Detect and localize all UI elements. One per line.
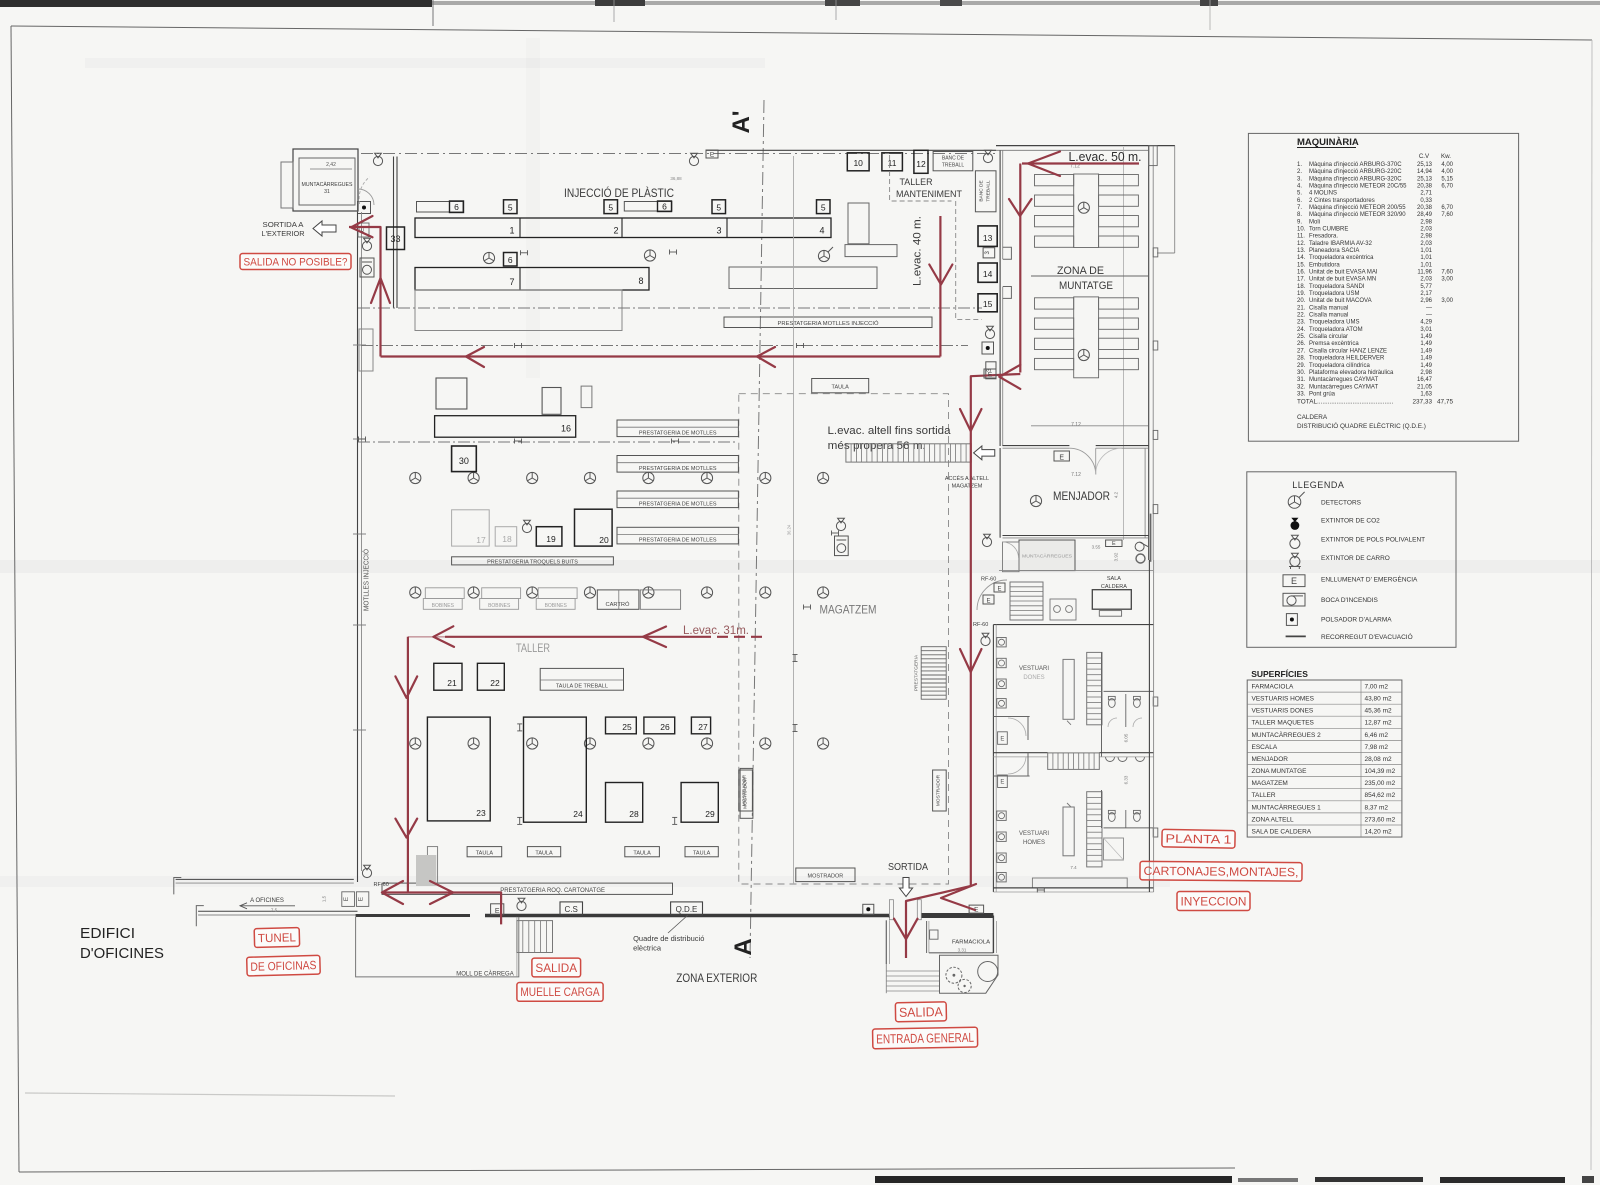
svg-text:29: 29: [705, 809, 715, 819]
svg-text:ACCÉS A ALTELL: ACCÉS A ALTELL: [945, 475, 989, 482]
svg-text:TAULA DE TREBALL: TAULA DE TREBALL: [556, 684, 608, 690]
svg-text:12.: 12.: [1297, 241, 1306, 247]
svg-text:PRESTATGERIA DE MOTLLES: PRESTATGERIA DE MOTLLES: [639, 466, 717, 472]
svg-text:D'OFICINES: D'OFICINES: [80, 945, 164, 962]
svg-text:MENJADOR: MENJADOR: [1252, 756, 1289, 763]
svg-text:1,01: 1,01: [1420, 248, 1432, 254]
svg-text:PRESTATGERIA DE MOTLLES: PRESTATGERIA DE MOTLLES: [639, 538, 717, 544]
svg-text:DISTRIBUCIÓ QUADRE ELÈCTRIC (Q: DISTRIBUCIÓ QUADRE ELÈCTRIC (Q.D.E.): [1297, 421, 1426, 430]
svg-text:MUNTATGE: MUNTATGE: [1059, 280, 1113, 292]
svg-text:237,33: 237,33: [1412, 399, 1432, 406]
svg-text:7,00 m2: 7,00 m2: [1365, 684, 1389, 691]
svg-text:16.: 16.: [1297, 270, 1306, 276]
svg-text:19: 19: [546, 534, 556, 544]
svg-text:VESTUARI: VESTUARI: [1019, 666, 1049, 672]
svg-text:MANTENIMENT: MANTENIMENT: [896, 189, 962, 200]
svg-text:—: —: [1426, 313, 1432, 319]
svg-text:273,60 m2: 273,60 m2: [1365, 816, 1396, 823]
svg-text:Cisalla circular: Cisalla circular: [1309, 334, 1348, 340]
svg-text:EXTINTOR DE CO2: EXTINTOR DE CO2: [1321, 518, 1380, 525]
svg-text:12,87 m2: 12,87 m2: [1365, 720, 1392, 727]
svg-text:3.: 3.: [1297, 176, 1302, 182]
svg-text:20: 20: [599, 535, 609, 545]
svg-text:L.evac. 31m.: L.evac. 31m.: [683, 625, 749, 637]
svg-text:4 MOLINS: 4 MOLINS: [1309, 191, 1337, 197]
svg-text:4,29: 4,29: [1420, 320, 1432, 326]
svg-text:8,37 m2: 8,37 m2: [1365, 804, 1389, 811]
svg-text:22.: 22.: [1297, 313, 1306, 319]
svg-text:2,96: 2,96: [1420, 298, 1432, 304]
svg-text:14.: 14.: [1297, 255, 1306, 261]
svg-text:Planeadora SACIA: Planeadora SACIA: [1309, 248, 1359, 254]
svg-text:EXTINTOR DE POLS POLIVALENT: EXTINTOR DE POLS POLIVALENT: [1321, 537, 1425, 544]
svg-text:Cisalla manual: Cisalla manual: [1309, 305, 1348, 311]
svg-text:SALA DE CALDERA: SALA DE CALDERA: [1252, 828, 1312, 835]
svg-text:ZONA MUNTATGE: ZONA MUNTATGE: [1252, 768, 1308, 775]
svg-text:28,49: 28,49: [1417, 212, 1433, 218]
svg-text:3,00: 3,00: [1441, 298, 1453, 304]
svg-text:1.: 1.: [1297, 162, 1302, 168]
svg-text:RF-60: RF-60: [981, 577, 996, 583]
svg-text:BANC DE: BANC DE: [979, 180, 985, 201]
svg-text:2,03: 2,03: [1420, 227, 1432, 233]
svg-text:33.: 33.: [1297, 391, 1306, 397]
svg-text:7,5: 7,5: [271, 908, 278, 913]
svg-text:VESTUARI: VESTUARI: [1019, 831, 1049, 837]
svg-text:1: 1: [509, 226, 514, 236]
svg-text:2,17: 2,17: [1420, 291, 1432, 297]
svg-text:4: 4: [819, 226, 824, 236]
svg-text:5,15: 5,15: [1441, 176, 1453, 182]
svg-text:Troqueladora USM: Troqueladora USM: [1309, 291, 1359, 297]
svg-text:7.12: 7.12: [1071, 472, 1081, 478]
svg-text:6,70: 6,70: [1441, 184, 1453, 190]
svg-text:PRESTATGERIA TROQUELS BUITS: PRESTATGERIA TROQUELS BUITS: [487, 560, 578, 566]
svg-text:20,38: 20,38: [1417, 184, 1433, 190]
svg-text:1,49: 1,49: [1420, 341, 1432, 347]
svg-text:2,03: 2,03: [1420, 277, 1432, 283]
svg-text:TREBALL: TREBALL: [986, 180, 992, 202]
svg-text:C.V: C.V: [1419, 153, 1430, 160]
svg-text:E: E: [1112, 541, 1116, 547]
svg-text:més propera 56 m.: més propera 56 m.: [828, 440, 926, 452]
svg-text:2.: 2.: [1297, 169, 1302, 175]
svg-text:E: E: [710, 151, 715, 158]
svg-text:22: 22: [490, 678, 500, 688]
svg-text:14: 14: [983, 269, 993, 279]
svg-text:2,98: 2,98: [1420, 219, 1432, 225]
svg-text:Taladre IBARMIA AV-32: Taladre IBARMIA AV-32: [1309, 241, 1373, 247]
svg-text:2,42: 2,42: [326, 162, 336, 168]
svg-text:BOBINES: BOBINES: [545, 603, 568, 609]
svg-text:3.92: 3.92: [1114, 552, 1119, 561]
svg-text:6: 6: [508, 255, 513, 265]
svg-text:25,13: 25,13: [1417, 176, 1433, 182]
svg-text:E: E: [1000, 780, 1004, 786]
svg-text:5: 5: [508, 203, 513, 213]
svg-text:1,01: 1,01: [1420, 255, 1432, 261]
svg-text:Premsa excèntrica: Premsa excèntrica: [1309, 341, 1359, 347]
svg-text:Muntacàrregues CAYMAT: Muntacàrregues CAYMAT: [1309, 384, 1378, 390]
svg-text:L.evac. altell fins sortida: L.evac. altell fins sortida: [828, 425, 952, 437]
svg-text:1,01: 1,01: [1420, 262, 1432, 268]
svg-text:PRESTATGERIA: PRESTATGERIA: [914, 654, 920, 691]
svg-text:6: 6: [454, 202, 459, 212]
svg-text:INYECCION: INYECCION: [1181, 894, 1247, 908]
svg-text:MUNTACÀRREGUES 1: MUNTACÀRREGUES 1: [1252, 802, 1322, 811]
svg-text:2,03: 2,03: [1420, 241, 1432, 247]
svg-text:23.: 23.: [1297, 320, 1306, 326]
svg-text:A: A: [730, 938, 757, 955]
svg-text:11: 11: [888, 158, 897, 168]
svg-text:20.: 20.: [1297, 298, 1306, 304]
svg-text:16,47: 16,47: [1417, 377, 1433, 383]
svg-text:21: 21: [447, 678, 457, 688]
svg-text:Moli: Moli: [1309, 219, 1320, 225]
svg-text:Troqueladora SANDI: Troqueladora SANDI: [1309, 284, 1365, 290]
svg-text:24: 24: [573, 809, 583, 819]
svg-text:4,00: 4,00: [1441, 162, 1453, 168]
svg-text:104,39 m2: 104,39 m2: [1365, 768, 1396, 775]
svg-text:PLANTA 1: PLANTA 1: [1165, 831, 1232, 846]
svg-text:Fresadora.: Fresadora.: [1309, 234, 1338, 240]
svg-text:1,63: 1,63: [1420, 391, 1432, 397]
svg-text:15.: 15.: [1297, 262, 1306, 268]
svg-text:BOCA D'INCENDIS: BOCA D'INCENDIS: [1321, 597, 1379, 604]
svg-text:20,38: 20,38: [1417, 205, 1433, 211]
svg-text:28: 28: [629, 809, 639, 819]
svg-text:Troqueladora excèntrica: Troqueladora excèntrica: [1309, 255, 1374, 261]
svg-text:235,00 m2: 235,00 m2: [1365, 780, 1396, 787]
svg-text:19.: 19.: [1297, 291, 1306, 297]
svg-text:Pont grúa: Pont grúa: [1309, 391, 1336, 397]
svg-text:L'EXTERIOR: L'EXTERIOR: [262, 231, 305, 238]
svg-text:MUNTACÀRREGUES: MUNTACÀRREGUES: [1022, 553, 1072, 560]
svg-text:6: 6: [662, 202, 667, 212]
svg-text:HOMES: HOMES: [1023, 840, 1045, 846]
svg-text:16: 16: [561, 424, 571, 434]
svg-text:23: 23: [476, 808, 486, 818]
svg-text:VESTUARIS HOMES: VESTUARIS HOMES: [1252, 696, 1315, 703]
svg-text:E: E: [997, 586, 1001, 592]
svg-text:3.31: 3.31: [958, 948, 967, 953]
svg-text:2,98: 2,98: [1420, 234, 1432, 240]
svg-text:PRESTATGERIA MOTLLES INJECCIÓ: PRESTATGERIA MOTLLES INJECCIÓ: [778, 320, 879, 327]
svg-text:Troqueladora cilíndrica: Troqueladora cilíndrica: [1309, 363, 1370, 369]
svg-text:29.: 29.: [1297, 363, 1306, 369]
svg-text:2: 2: [613, 226, 618, 236]
svg-text:13.: 13.: [1297, 248, 1306, 254]
svg-text:1,49: 1,49: [1420, 334, 1432, 340]
svg-text:21.: 21.: [1297, 305, 1306, 311]
svg-text:Muntacàrregues CAYMAT: Muntacàrregues CAYMAT: [1309, 377, 1378, 383]
svg-text:Unitat de buit EVASA MAI: Unitat de buit EVASA MAI: [1309, 270, 1378, 276]
svg-text:MOSTRADOR: MOSTRADOR: [743, 777, 749, 809]
svg-text:17: 17: [476, 535, 486, 545]
svg-text:SORTIDA A: SORTIDA A: [263, 222, 304, 229]
svg-text:TOTAL.........................: TOTAL...................................…: [1297, 399, 1394, 406]
svg-text:Cisalla circular HANZ LENZE: Cisalla circular HANZ LENZE: [1309, 348, 1387, 354]
svg-text:27: 27: [698, 722, 708, 732]
svg-text:ENLLUMENAT D' EMERGÈNCIA: ENLLUMENAT D' EMERGÈNCIA: [1321, 575, 1418, 584]
svg-text:3,00: 3,00: [1441, 277, 1453, 283]
svg-text:31.: 31.: [1297, 377, 1306, 383]
svg-text:15: 15: [983, 299, 993, 309]
svg-text:CARTONAJES,MONTAJES,: CARTONAJES,MONTAJES,: [1143, 864, 1298, 879]
svg-text:DETECTORS: DETECTORS: [1321, 500, 1362, 507]
svg-text:28,08 m2: 28,08 m2: [1365, 756, 1392, 763]
svg-text:Troqueladora UMS: Troqueladora UMS: [1309, 320, 1359, 326]
svg-text:FARMACIOLA: FARMACIOLA: [1252, 684, 1295, 691]
svg-text:28.: 28.: [1297, 356, 1306, 362]
svg-text:7: 7: [509, 277, 514, 287]
svg-text:TAULA: TAULA: [633, 851, 651, 857]
svg-text:2 Cintes transportadores: 2 Cintes transportadores: [1309, 198, 1375, 204]
svg-text:5: 5: [608, 203, 613, 213]
svg-text:MOTLLES INJECCIÓ: MOTLLES INJECCIÓ: [362, 548, 371, 611]
svg-text:BOBINES: BOBINES: [432, 603, 455, 609]
svg-text:TREBALL: TREBALL: [942, 163, 964, 169]
svg-text:TAULA: TAULA: [832, 385, 850, 391]
svg-text:3: 3: [716, 226, 721, 236]
svg-text:7,60: 7,60: [1441, 270, 1453, 276]
svg-text:CALDERA: CALDERA: [1297, 414, 1328, 421]
svg-text:ZONA ALTELL: ZONA ALTELL: [1252, 816, 1295, 823]
svg-text:6,70: 6,70: [1441, 205, 1453, 211]
svg-text:PRESTATGERIA DE MOTLLES: PRESTATGERIA DE MOTLLES: [639, 501, 717, 507]
svg-text:Màquina d'injecció METEOR 20C/: Màquina d'injecció METEOR 20C/55: [1309, 184, 1407, 190]
svg-text:EDIFICI: EDIFICI: [80, 925, 135, 942]
svg-text:E: E: [1000, 737, 1004, 743]
svg-text:MOLL DE CÀRREGA: MOLL DE CÀRREGA: [456, 971, 513, 978]
svg-text:Unitat de buit EVASA MN: Unitat de buit EVASA MN: [1309, 277, 1376, 283]
svg-text:—: —: [1426, 305, 1432, 311]
svg-text:6,46 m2: 6,46 m2: [1365, 732, 1389, 739]
svg-text:Troqueladora HEILDERVER: Troqueladora HEILDERVER: [1309, 356, 1385, 362]
svg-text:PRESTATGERIA ROQ. CARTONATGE: PRESTATGERIA ROQ. CARTONATGE: [500, 888, 605, 894]
svg-text:8: 8: [638, 276, 643, 286]
svg-text:Màquina d'injecció METEOR 320/: Màquina d'injecció METEOR 320/90: [1309, 212, 1406, 218]
svg-text:14,94: 14,94: [1417, 169, 1433, 175]
svg-text:10.: 10.: [1297, 227, 1306, 233]
svg-text:45,36 m2: 45,36 m2: [1365, 708, 1392, 715]
svg-text:36.24: 36.24: [787, 524, 792, 535]
svg-text:26: 26: [660, 722, 670, 732]
svg-text:E: E: [1291, 576, 1297, 586]
svg-text:ZONA DE: ZONA DE: [1057, 265, 1104, 277]
svg-text:A': A': [728, 110, 755, 133]
svg-text:L.evac. 40 m.: L.evac. 40 m.: [911, 216, 923, 286]
svg-text:21,05: 21,05: [1417, 384, 1433, 390]
svg-text:Màquina d'injecció ARBURG-370C: Màquina d'injecció ARBURG-370C: [1309, 162, 1402, 168]
svg-text:LLEGENDA: LLEGENDA: [1292, 480, 1344, 490]
svg-text:7.: 7.: [1297, 205, 1302, 211]
svg-text:E: E: [1059, 454, 1064, 461]
svg-text:CARTRÓ: CARTRÓ: [606, 601, 630, 608]
svg-text:VESTUARIS DONES: VESTUARIS DONES: [1252, 708, 1314, 715]
svg-text:INJECCIÓ DE PLÀSTIC: INJECCIÓ DE PLÀSTIC: [564, 185, 674, 200]
svg-text:MUNTACÀRREGUES 2: MUNTACÀRREGUES 2: [1252, 730, 1322, 739]
svg-text:1,49: 1,49: [1420, 348, 1432, 354]
svg-text:5: 5: [716, 203, 721, 213]
svg-text:ESCALA: ESCALA: [1252, 744, 1278, 751]
svg-text:5: 5: [821, 203, 826, 213]
svg-text:18: 18: [502, 534, 512, 544]
svg-text:MAQUINÀRIA: MAQUINÀRIA: [1297, 137, 1359, 148]
svg-text:5,77: 5,77: [1420, 284, 1432, 290]
svg-text:Troqueladora ATOM: Troqueladora ATOM: [1309, 327, 1363, 333]
svg-text:TAULA: TAULA: [693, 851, 711, 857]
svg-text:SALIDA NO POSIBLE?: SALIDA NO POSIBLE?: [244, 256, 348, 268]
svg-text:3,01: 3,01: [1420, 327, 1432, 333]
svg-text:13: 13: [983, 233, 993, 243]
svg-text:6.05: 6.05: [1124, 733, 1129, 742]
svg-text:8.: 8.: [1297, 212, 1302, 218]
svg-text:26.: 26.: [1297, 341, 1306, 347]
svg-text:RF-60: RF-60: [374, 882, 389, 888]
svg-text:RECORREGUT D'EVACUACIÓ: RECORREGUT D'EVACUACIÓ: [1321, 632, 1413, 641]
svg-text:3.55: 3.55: [1092, 545, 1101, 550]
svg-text:7,60: 7,60: [1441, 212, 1453, 218]
svg-text:Q.D.E: Q.D.E: [676, 905, 698, 914]
svg-text:MAGATZEM: MAGATZEM: [952, 484, 983, 490]
svg-text:PRESTATGERIA DE MOTLLES: PRESTATGERIA DE MOTLLES: [639, 430, 717, 436]
svg-text:elèctrica: elèctrica: [633, 944, 662, 953]
svg-text:MAGATZEM: MAGATZEM: [820, 605, 877, 617]
svg-text:11,96: 11,96: [1417, 270, 1432, 276]
svg-text:25.: 25.: [1297, 334, 1306, 340]
svg-text:SALIDA: SALIDA: [899, 1004, 943, 1020]
svg-text:854,62 m2: 854,62 m2: [1365, 792, 1396, 799]
svg-text:BOBINES: BOBINES: [488, 603, 511, 609]
svg-text:1,49: 1,49: [1420, 356, 1432, 362]
svg-text:7.4: 7.4: [1070, 865, 1077, 870]
svg-text:E: E: [358, 896, 365, 901]
svg-text:9.: 9.: [1297, 219, 1302, 225]
svg-text:TALLER: TALLER: [1252, 792, 1276, 799]
svg-text:4.2: 4.2: [1114, 491, 1119, 498]
svg-text:A OFICINES: A OFICINES: [250, 898, 284, 904]
svg-text:Torn CUMBRE: Torn CUMBRE: [1309, 227, 1348, 233]
svg-text:2,71: 2,71: [1420, 191, 1432, 197]
svg-text:EXTINTOR DE CARRO: EXTINTOR DE CARRO: [1321, 555, 1390, 562]
svg-text:25,13: 25,13: [1417, 162, 1433, 168]
svg-text:MOSTRADOR: MOSTRADOR: [935, 774, 941, 806]
svg-text:43,80 m2: 43,80 m2: [1365, 696, 1392, 703]
svg-text:RF-60: RF-60: [973, 622, 988, 628]
svg-text:Kw.: Kw.: [1441, 153, 1451, 160]
svg-text:SALA: SALA: [1107, 576, 1121, 582]
svg-text:MOSTRADOR: MOSTRADOR: [808, 874, 844, 880]
svg-text:7.12: 7.12: [1071, 422, 1081, 428]
svg-text:BANC DE: BANC DE: [942, 156, 965, 162]
svg-text:32.: 32.: [1297, 384, 1306, 390]
svg-text:27.: 27.: [1297, 348, 1306, 354]
svg-text:7,98 m2: 7,98 m2: [1365, 744, 1389, 751]
svg-text:E: E: [343, 896, 350, 901]
svg-text:2,98: 2,98: [1420, 370, 1432, 376]
svg-text:E: E: [988, 371, 993, 378]
svg-text:DONES: DONES: [1023, 675, 1044, 681]
svg-text:24.: 24.: [1297, 327, 1306, 333]
svg-text:0,33: 0,33: [1420, 198, 1432, 204]
svg-text:12: 12: [916, 159, 926, 169]
svg-text:Plataforma elevadora hidràulic: Plataforma elevadora hidràulica: [1309, 370, 1394, 376]
svg-text:4,00: 4,00: [1441, 169, 1453, 175]
svg-text:10: 10: [853, 158, 863, 168]
svg-text:30: 30: [459, 456, 469, 466]
svg-text:C.S: C.S: [565, 905, 578, 914]
svg-text:6.: 6.: [1297, 198, 1302, 204]
svg-text:Màquina d'injecció ARBURG-220C: Màquina d'injecció ARBURG-220C: [1309, 169, 1402, 175]
svg-text:31: 31: [324, 189, 330, 195]
svg-text:SUPERFÍCIES: SUPERFÍCIES: [1251, 669, 1308, 679]
svg-text:Unitat de buit MACOVA: Unitat de buit MACOVA: [1309, 298, 1372, 304]
svg-text:ENTRADA GENERAL: ENTRADA GENERAL: [876, 1030, 974, 1047]
svg-text:1,5: 1,5: [322, 895, 327, 902]
svg-text:Cisalla manual: Cisalla manual: [1309, 313, 1348, 319]
svg-text:TALLER MAQUETES: TALLER MAQUETES: [1252, 720, 1315, 727]
svg-text:14,20 m2: 14,20 m2: [1365, 828, 1392, 835]
svg-text:33: 33: [390, 234, 400, 244]
svg-text:TALLER: TALLER: [516, 641, 550, 655]
svg-text:Embutidora: Embutidora: [1309, 262, 1340, 268]
svg-text:4.: 4.: [1297, 184, 1302, 190]
svg-text:6.33: 6.33: [1124, 775, 1129, 784]
svg-text:25: 25: [622, 722, 632, 732]
svg-text:17.: 17.: [1297, 277, 1306, 283]
svg-text:ZONA EXTERIOR: ZONA EXTERIOR: [676, 971, 757, 985]
svg-text:47,75: 47,75: [1437, 399, 1453, 406]
svg-text:E: E: [495, 908, 500, 915]
svg-text:MENJADOR: MENJADOR: [1053, 491, 1110, 503]
svg-text:DE OFICINAS: DE OFICINAS: [250, 958, 316, 974]
svg-text:L.evac. 50 m.: L.evac. 50 m.: [1069, 150, 1142, 164]
svg-text:1,49: 1,49: [1420, 363, 1432, 369]
svg-text:Màquina d'injecció ARBURG-320C: Màquina d'injecció ARBURG-320C: [1309, 176, 1402, 182]
svg-text:5.: 5.: [1297, 191, 1302, 197]
svg-text:Quadre de distribució: Quadre de distribució: [633, 934, 704, 943]
svg-text:TAULA: TAULA: [535, 851, 553, 857]
svg-text:TALLER: TALLER: [900, 177, 933, 188]
svg-text:POLSADOR D'ALARMA: POLSADOR D'ALARMA: [1321, 617, 1392, 624]
svg-text:SALIDA: SALIDA: [535, 961, 577, 975]
svg-text:TUNEL: TUNEL: [258, 930, 297, 945]
svg-text:SORTIDA: SORTIDA: [888, 862, 928, 873]
svg-text:30.: 30.: [1297, 370, 1306, 376]
svg-text:MAGATZEM: MAGATZEM: [1252, 780, 1288, 787]
svg-text:E: E: [986, 598, 990, 604]
svg-text:Màquina d'injecció METEOR 200/: Màquina d'injecció METEOR 200/55: [1309, 205, 1406, 211]
svg-text:36,88: 36,88: [670, 176, 682, 181]
svg-text:MUELLE CARGA: MUELLE CARGA: [520, 985, 599, 999]
svg-text:11.: 11.: [1297, 234, 1305, 240]
svg-text:18.: 18.: [1297, 284, 1306, 290]
svg-text:FARMACIOLA: FARMACIOLA: [952, 940, 990, 946]
svg-text:TAULA: TAULA: [476, 851, 494, 857]
svg-text:MUNTACÀRREGUES: MUNTACÀRREGUES: [302, 181, 353, 188]
